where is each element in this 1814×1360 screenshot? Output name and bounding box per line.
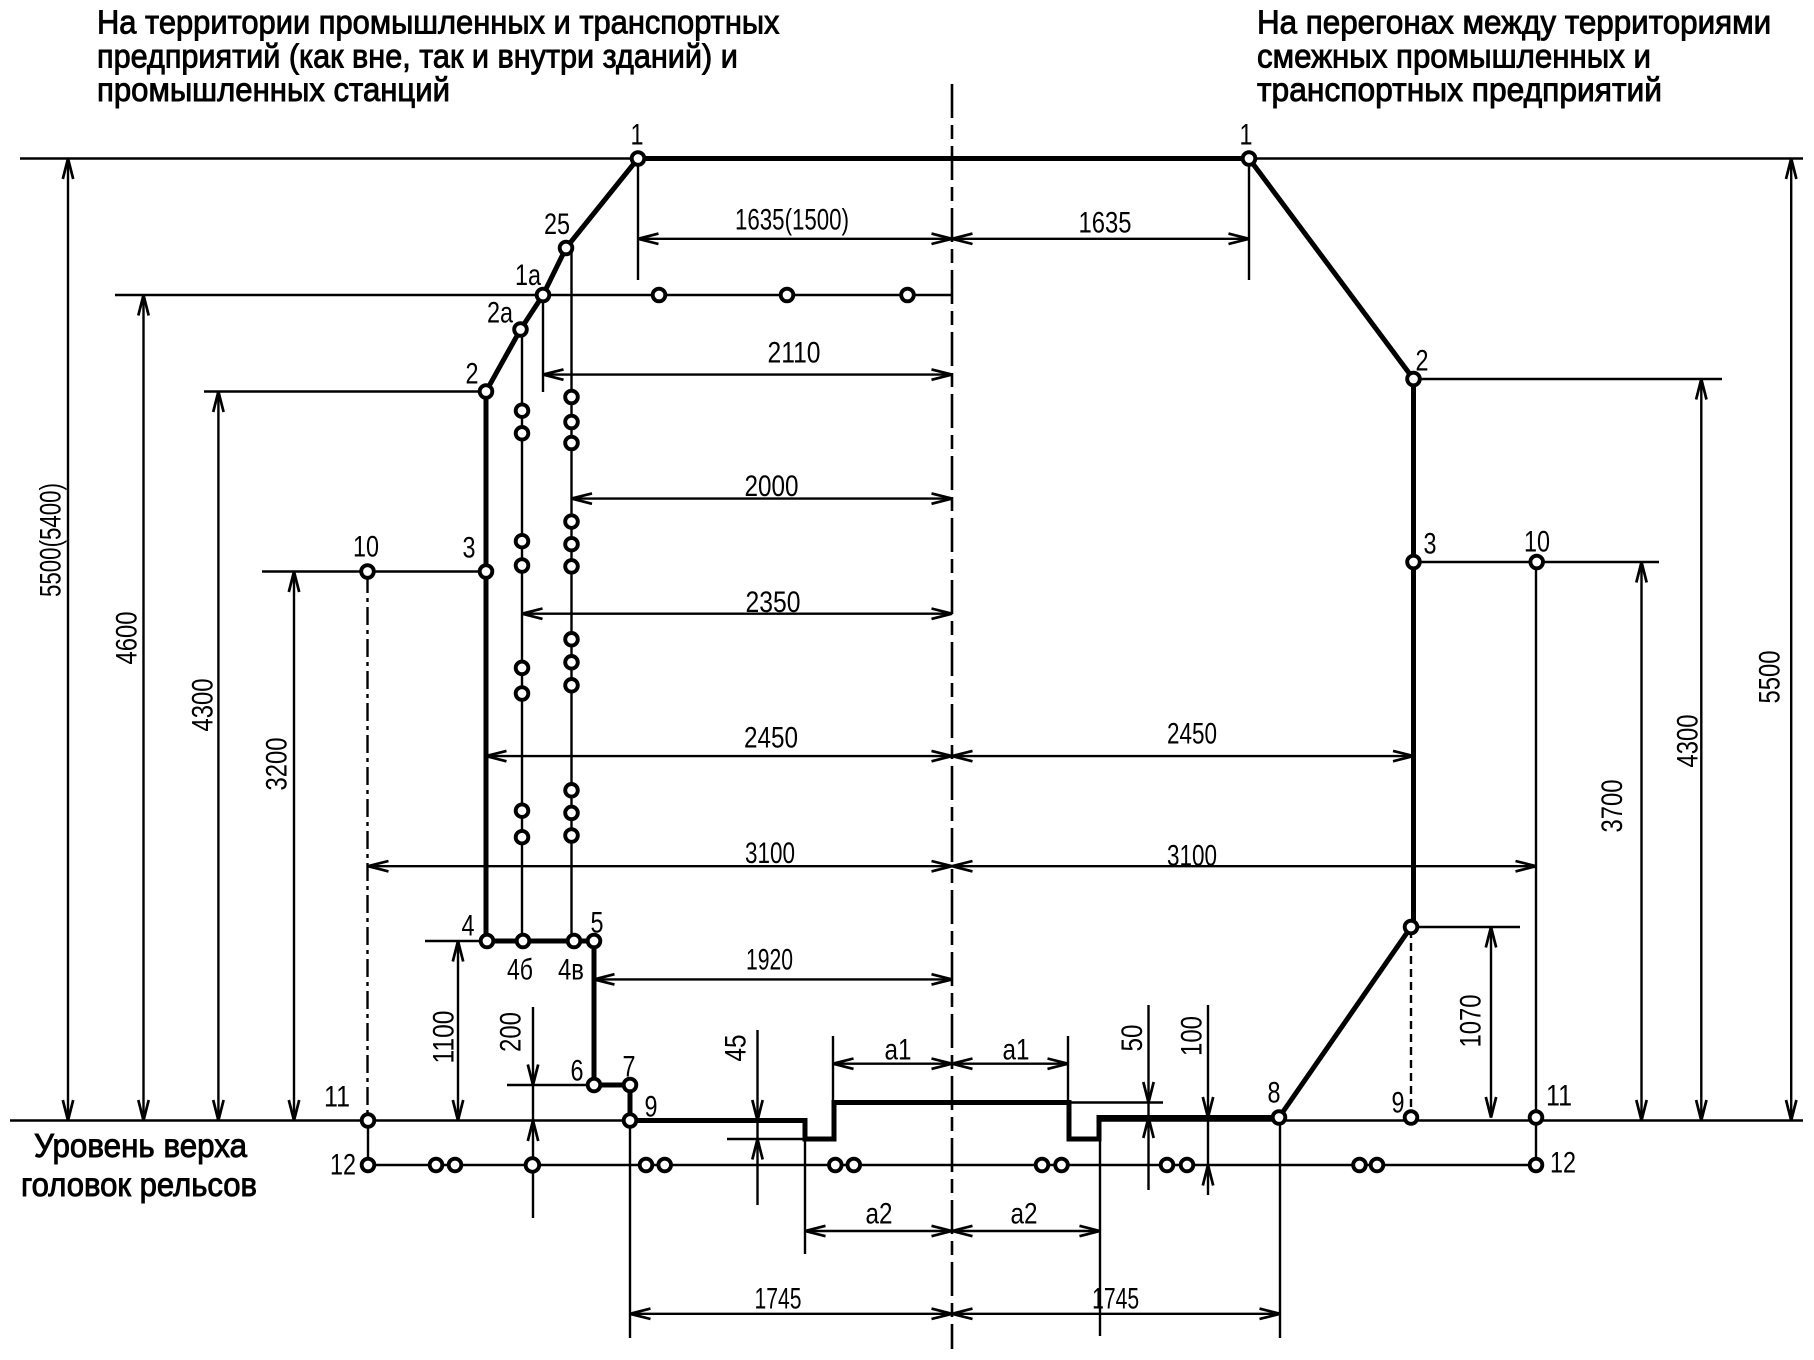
svg-text:3: 3 bbox=[463, 532, 476, 565]
svg-text:a2: a2 bbox=[866, 1198, 893, 1231]
svg-text:На территории промышленных и т: На территории промышленных и транспортны… bbox=[97, 4, 780, 41]
svg-text:3700: 3700 bbox=[1596, 780, 1629, 833]
svg-text:предприятий (как вне, так и вн: предприятий (как вне, так и внутри здани… bbox=[97, 38, 738, 75]
svg-text:10: 10 bbox=[353, 531, 379, 564]
svg-text:1100: 1100 bbox=[428, 1011, 461, 1064]
svg-text:1: 1 bbox=[1240, 119, 1253, 152]
svg-text:2450: 2450 bbox=[1167, 718, 1217, 751]
svg-text:25: 25 bbox=[544, 208, 570, 241]
svg-text:200: 200 bbox=[495, 1012, 528, 1052]
svg-text:5: 5 bbox=[591, 907, 604, 940]
svg-text:12: 12 bbox=[1550, 1147, 1576, 1180]
svg-text:1: 1 bbox=[631, 119, 644, 152]
svg-text:4: 4 bbox=[462, 910, 475, 943]
svg-text:5500(5400): 5500(5400) bbox=[35, 483, 68, 597]
svg-text:1635(1500): 1635(1500) bbox=[735, 204, 849, 237]
svg-text:1745: 1745 bbox=[1092, 1283, 1139, 1316]
svg-text:a1: a1 bbox=[1003, 1034, 1030, 1067]
svg-text:2: 2 bbox=[466, 358, 479, 391]
svg-text:2450: 2450 bbox=[744, 722, 798, 755]
svg-text:10: 10 bbox=[1524, 526, 1550, 559]
svg-text:На перегонах между территориям: На перегонах между территориями bbox=[1257, 4, 1771, 41]
svg-text:45: 45 bbox=[720, 1035, 753, 1062]
svg-text:3100: 3100 bbox=[1167, 840, 1217, 873]
svg-text:50: 50 bbox=[1116, 1025, 1149, 1052]
svg-text:12: 12 bbox=[330, 1149, 356, 1182]
svg-text:2350: 2350 bbox=[746, 586, 801, 619]
svg-text:11: 11 bbox=[324, 1081, 350, 1114]
svg-text:2110: 2110 bbox=[768, 337, 821, 370]
svg-text:4300: 4300 bbox=[1672, 715, 1705, 768]
svg-text:промышленных станций: промышленных станций bbox=[97, 71, 450, 108]
svg-text:3200: 3200 bbox=[261, 738, 294, 791]
svg-text:1070: 1070 bbox=[1455, 995, 1488, 1048]
svg-text:1635: 1635 bbox=[1079, 207, 1132, 240]
svg-text:Уровень верха: Уровень верха bbox=[34, 1127, 248, 1164]
svg-text:7: 7 bbox=[623, 1051, 636, 1084]
svg-text:4в: 4в bbox=[558, 954, 584, 987]
svg-text:1745: 1745 bbox=[755, 1283, 802, 1316]
svg-text:2000: 2000 bbox=[745, 470, 799, 503]
svg-text:9: 9 bbox=[645, 1091, 658, 1124]
svg-text:4600: 4600 bbox=[111, 612, 144, 665]
svg-text:6: 6 bbox=[571, 1055, 584, 1088]
svg-text:смежных промышленных и: смежных промышленных и bbox=[1257, 38, 1651, 75]
svg-text:3: 3 bbox=[1424, 528, 1437, 561]
svg-text:11: 11 bbox=[1546, 1080, 1572, 1113]
svg-text:4б: 4б bbox=[507, 954, 533, 987]
svg-text:2: 2 bbox=[1416, 345, 1429, 378]
svg-text:100: 100 bbox=[1176, 1016, 1209, 1056]
svg-text:8: 8 bbox=[1268, 1077, 1281, 1110]
svg-text:4300: 4300 bbox=[187, 679, 220, 732]
svg-text:1a: 1a bbox=[515, 259, 541, 292]
svg-text:a2: a2 bbox=[1011, 1198, 1038, 1231]
svg-text:3100: 3100 bbox=[745, 837, 795, 870]
svg-text:5500: 5500 bbox=[1754, 651, 1787, 704]
svg-text:транспортных предприятий: транспортных предприятий bbox=[1257, 71, 1662, 108]
svg-text:2a: 2a bbox=[487, 297, 513, 330]
svg-text:9: 9 bbox=[1392, 1087, 1405, 1120]
svg-text:1920: 1920 bbox=[746, 944, 793, 977]
svg-text:a1: a1 bbox=[885, 1034, 912, 1067]
svg-text:головок рельсов: головок рельсов bbox=[21, 1166, 257, 1203]
